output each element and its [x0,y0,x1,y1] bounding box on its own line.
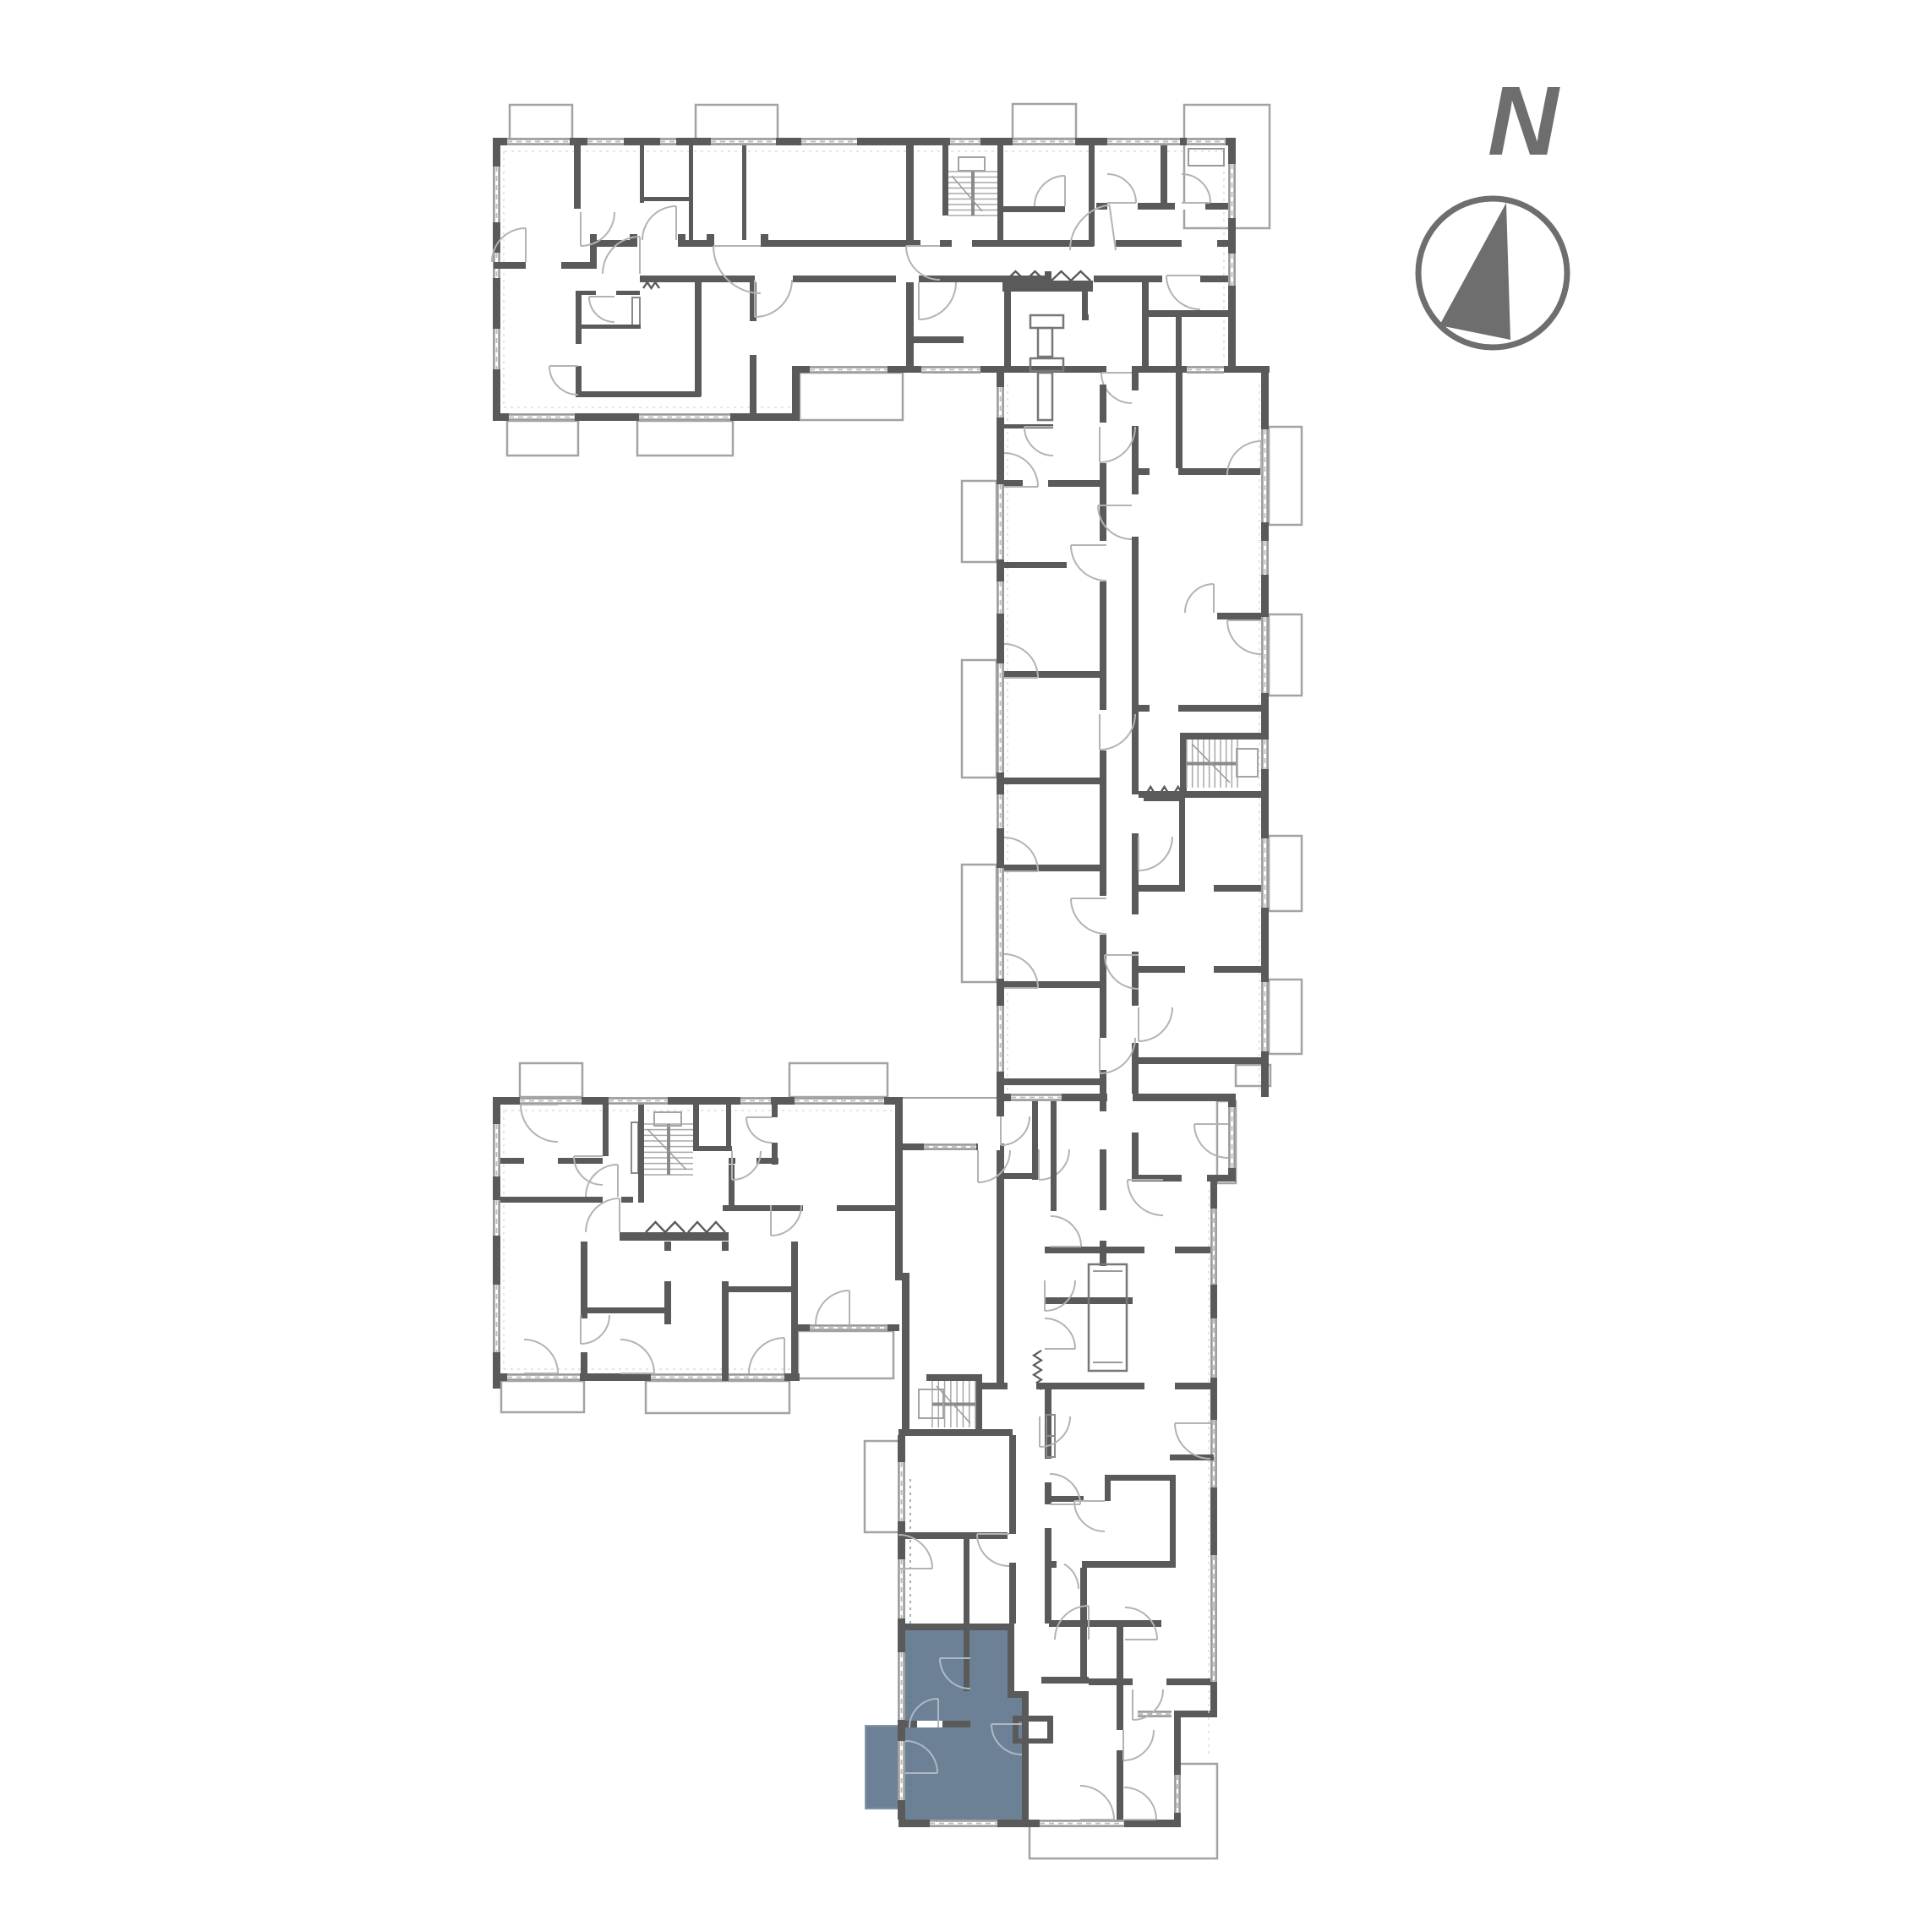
svg-text:N: N [1488,66,1560,176]
